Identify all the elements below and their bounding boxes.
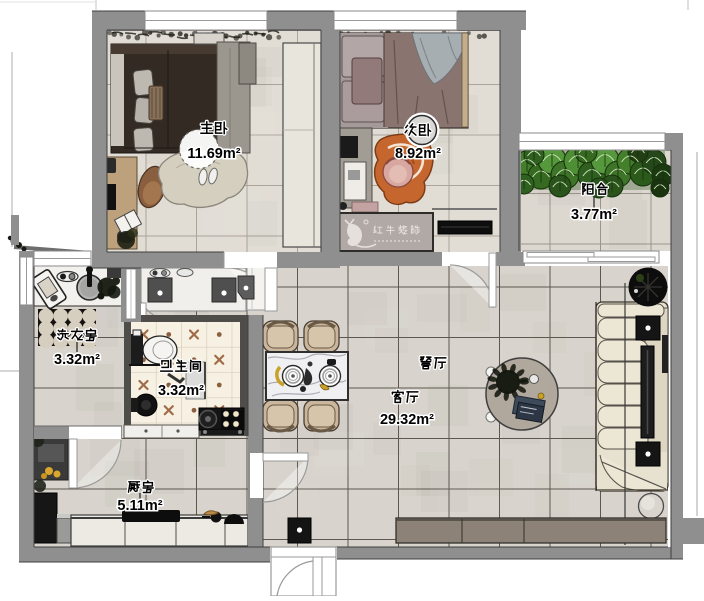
svg-text:3.77m²: 3.77m² bbox=[571, 207, 617, 223]
svg-text:29.32m²: 29.32m² bbox=[380, 412, 434, 428]
svg-text:8.92m²: 8.92m² bbox=[395, 146, 441, 162]
svg-text:3.32m²: 3.32m² bbox=[54, 352, 100, 368]
svg-text:3.32m²: 3.32m² bbox=[158, 383, 204, 399]
svg-text:11.69m²: 11.69m² bbox=[187, 146, 240, 162]
svg-text:5.11m²: 5.11m² bbox=[117, 498, 162, 514]
